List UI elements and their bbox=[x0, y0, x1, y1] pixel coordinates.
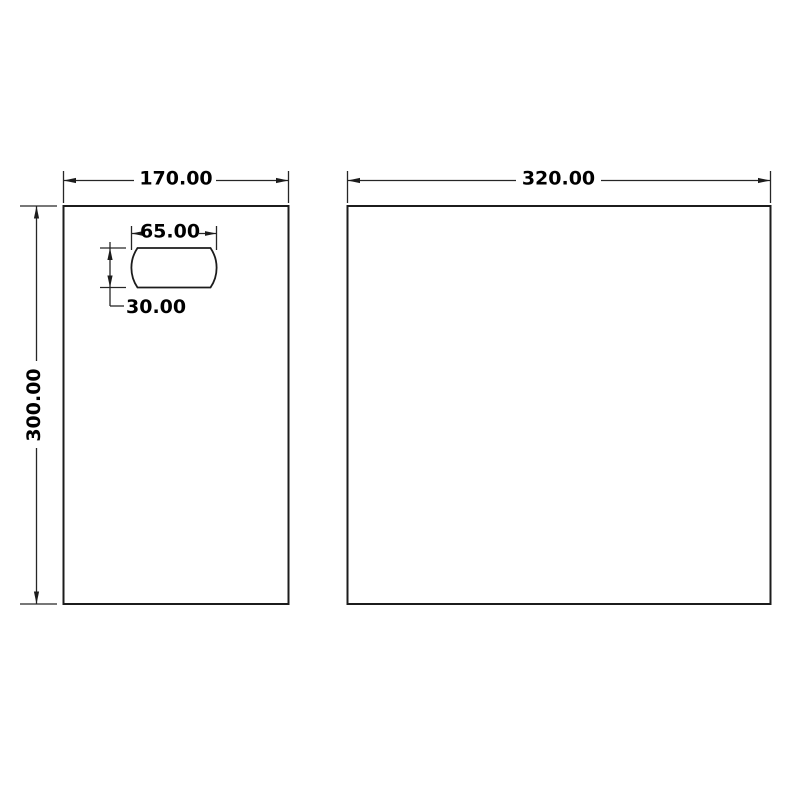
dim-right-panel-width: 320.00 bbox=[348, 168, 771, 204]
technical-drawing: 170.00 320.00 300.00 65.00 bbox=[0, 0, 800, 800]
right-panel-outline bbox=[348, 206, 771, 604]
dim-label-slot-height: 30.00 bbox=[126, 296, 186, 318]
arrow-right-icon bbox=[758, 178, 771, 183]
dim-left-panel-width: 170.00 bbox=[64, 168, 289, 204]
dim-label-left-panel-width: 170.00 bbox=[139, 168, 212, 190]
drawing-canvas: 170.00 320.00 300.00 65.00 bbox=[0, 0, 800, 800]
dim-left-panel-height: 300.00 bbox=[20, 206, 57, 604]
arrow-left-icon bbox=[348, 178, 361, 183]
arrow-down-icon bbox=[34, 592, 39, 605]
arrow-left-icon bbox=[64, 178, 77, 183]
dim-label-slot-width: 65.00 bbox=[140, 221, 200, 243]
arrow-up-icon bbox=[34, 206, 39, 219]
dim-label-left-panel-height: 300.00 bbox=[23, 368, 45, 441]
arrow-right-icon bbox=[276, 178, 289, 183]
handle-slot-outline bbox=[131, 248, 216, 288]
dim-label-right-panel-width: 320.00 bbox=[522, 168, 595, 190]
